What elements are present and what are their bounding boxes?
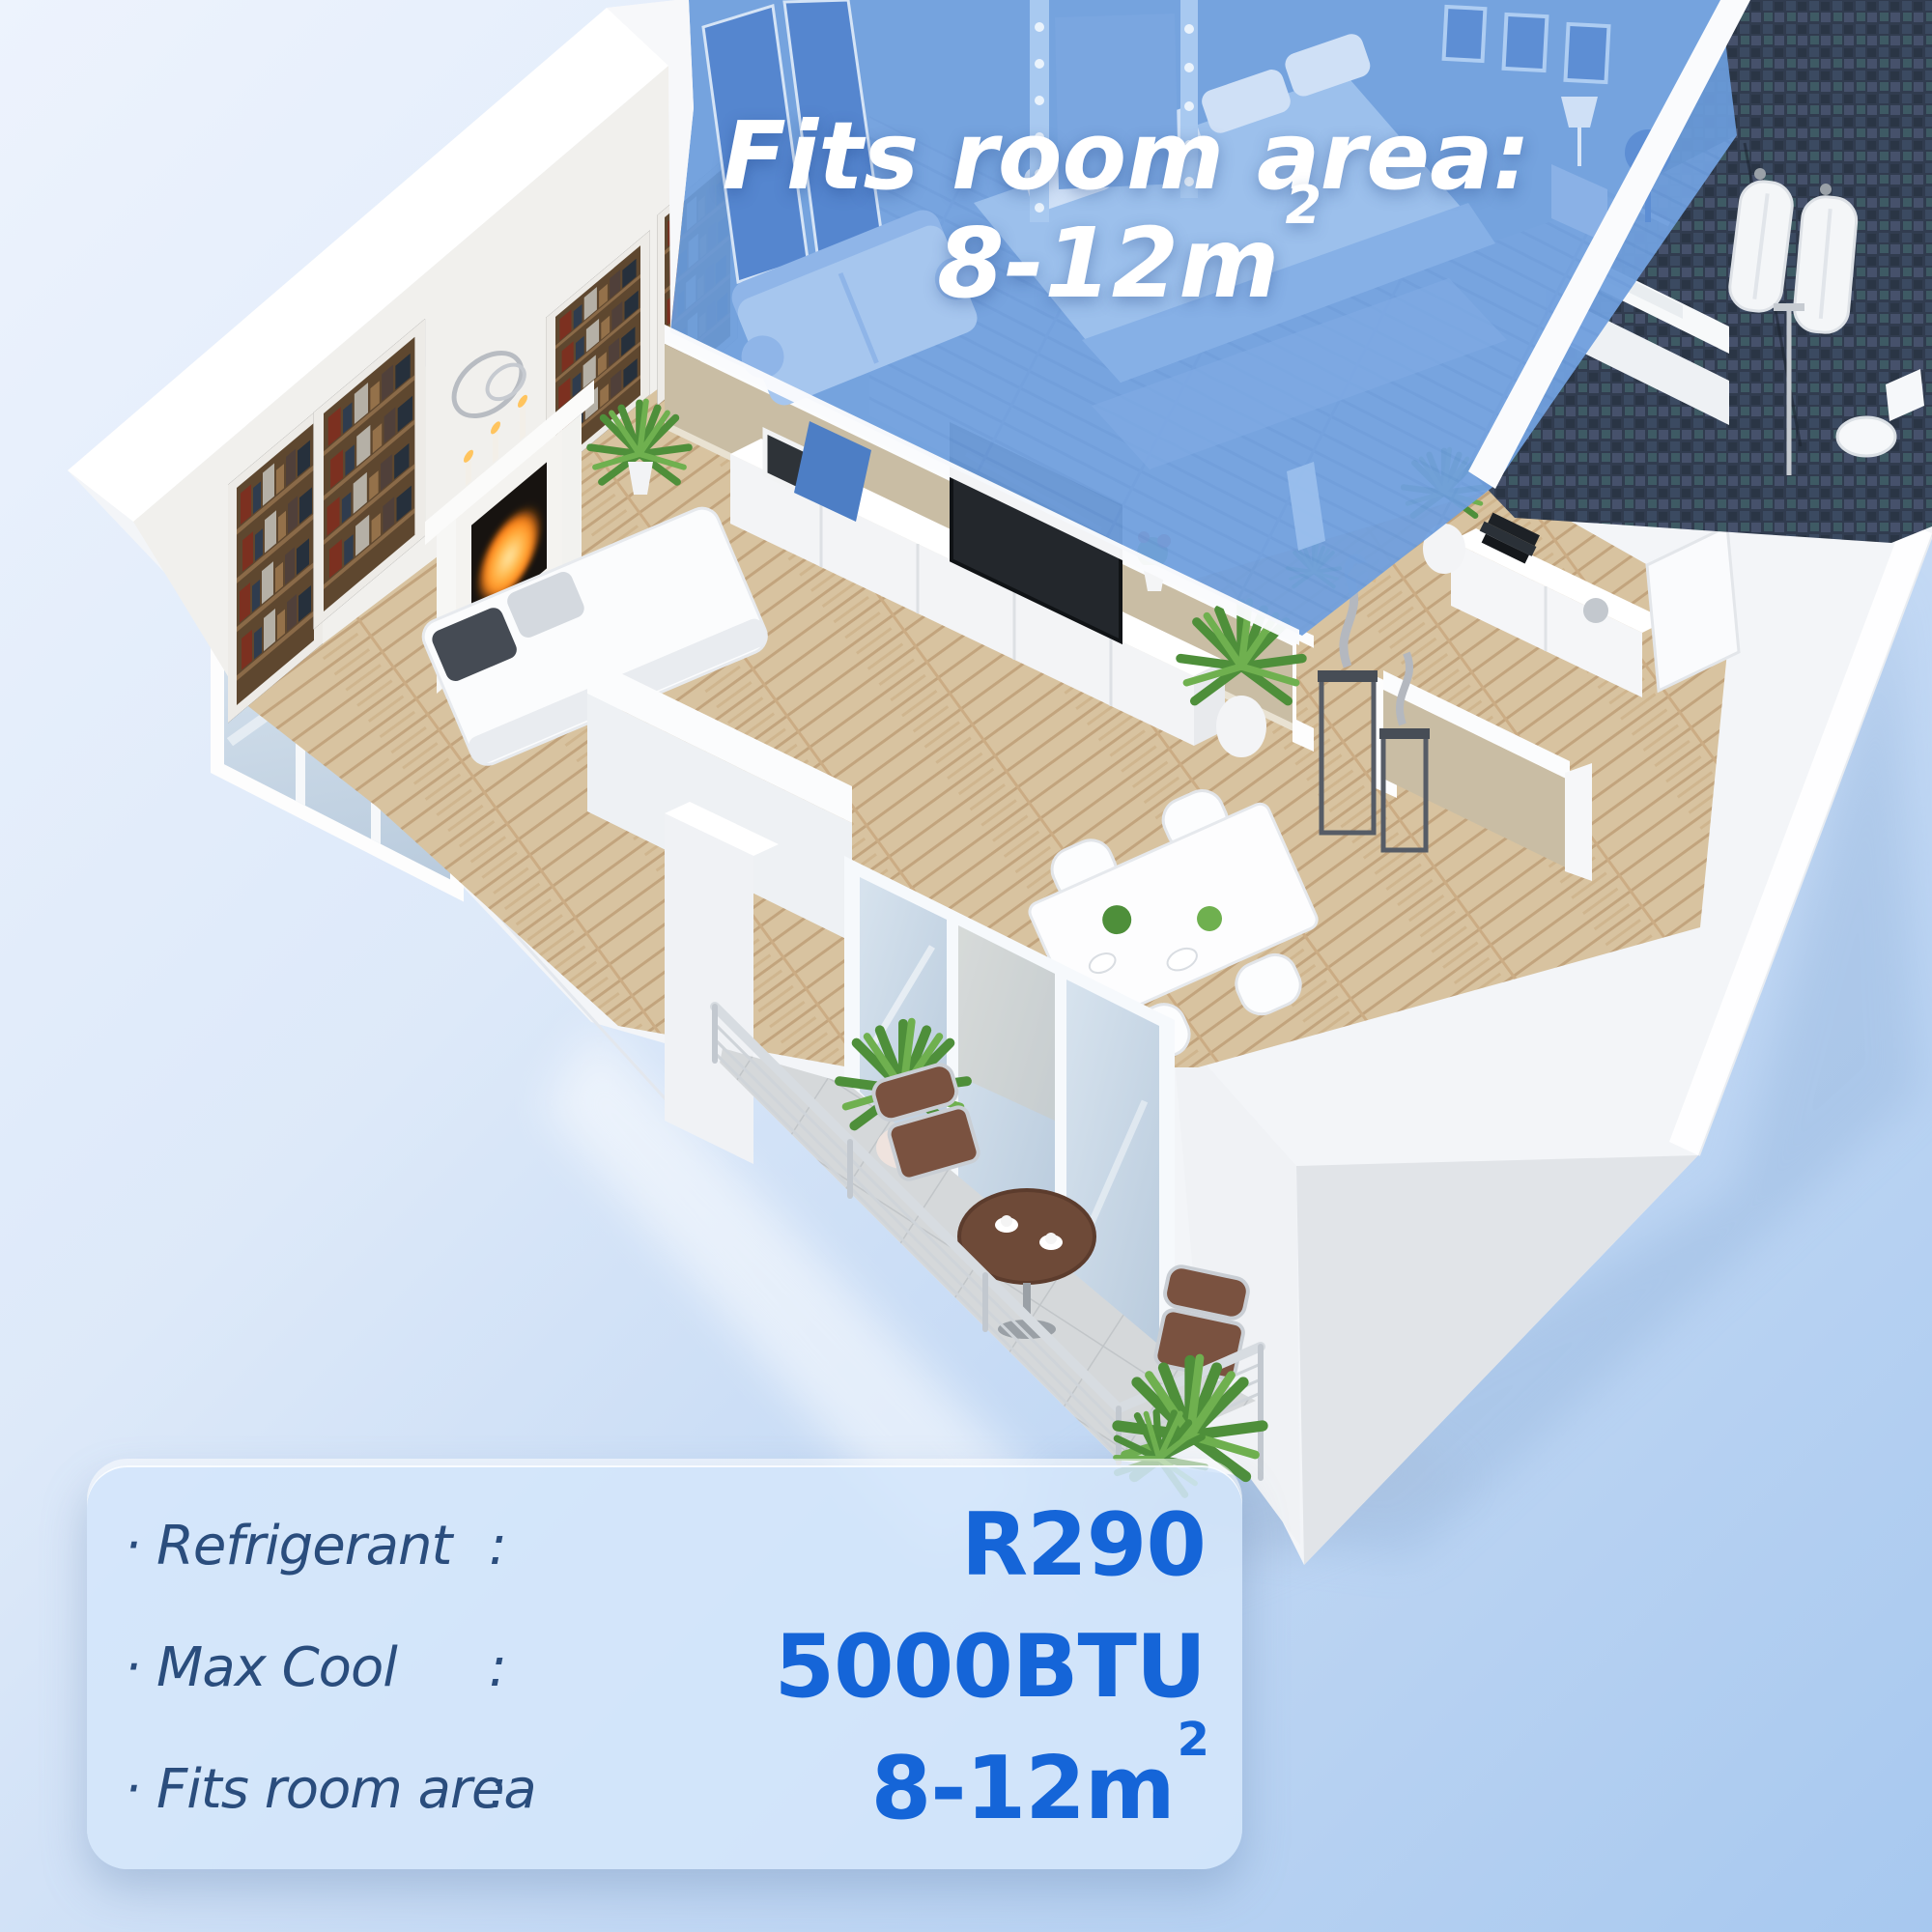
spec-label: Refrigerant [141,1515,489,1577]
spec-value: R290 [547,1502,1206,1589]
spec-colon: : [489,1636,547,1699]
spec-row-refrigerant: · Refrigerant : R290 [87,1490,1242,1602]
right-wing-shaded-face [1296,1155,1698,1565]
spec-colon: : [489,1758,547,1821]
room-area-overlay-title: Fits room area: 8-12m2 [723,108,1531,314]
overlay-title-line1: Fits room area: [723,108,1531,206]
spec-colon: : [489,1515,547,1577]
page-background: Fits room area: 8-12m2 · Refrigerant : R… [0,0,1932,1932]
spec-panel: · Refrigerant : R290 · Max Cool : 5000BT… [87,1465,1242,1869]
bullet-icon: · [87,1520,141,1572]
bullet-icon: · [87,1641,141,1693]
spec-row-max-cool: · Max Cool : 5000BTU [87,1611,1242,1723]
spec-row-fits-room-area: · Fits room area : 8-12m2 [87,1733,1242,1845]
spec-value: 8-12m2 [547,1746,1206,1833]
spec-value: 5000BTU [547,1624,1206,1711]
overlay-title-value: 8-12m2 [723,213,1531,314]
spec-label: Max Cool [141,1636,489,1699]
overlay-title-superscript: 2 [1285,175,1321,236]
bullet-icon: · [87,1763,141,1815]
spec-label: Fits room area [141,1758,489,1821]
